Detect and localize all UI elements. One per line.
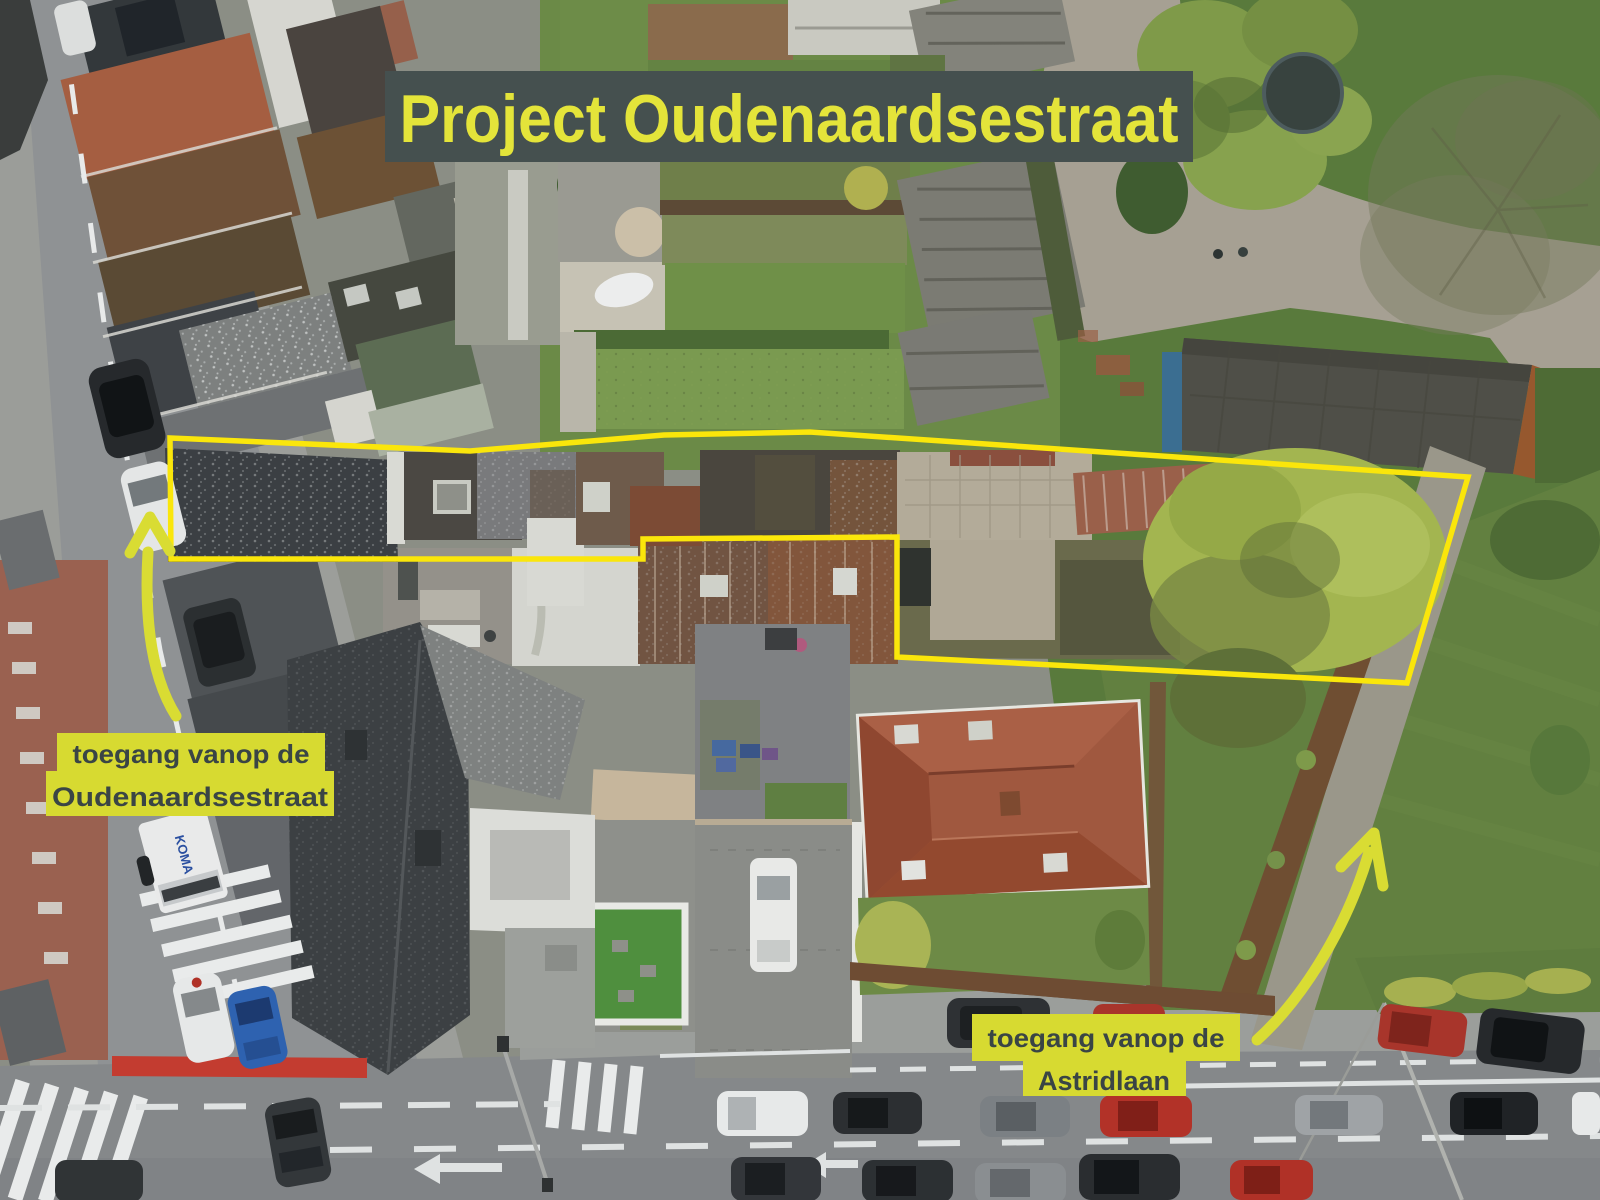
svg-text:toegang vanop de: toegang vanop de xyxy=(73,739,310,769)
svg-text:Oudenaardsestraat: Oudenaardsestraat xyxy=(52,782,328,812)
svg-text:Astridlaan: Astridlaan xyxy=(1038,1066,1170,1096)
svg-text:toegang vanop de: toegang vanop de xyxy=(988,1023,1225,1053)
svg-text:Project Oudenaardsestraat: Project Oudenaardsestraat xyxy=(400,81,1179,157)
